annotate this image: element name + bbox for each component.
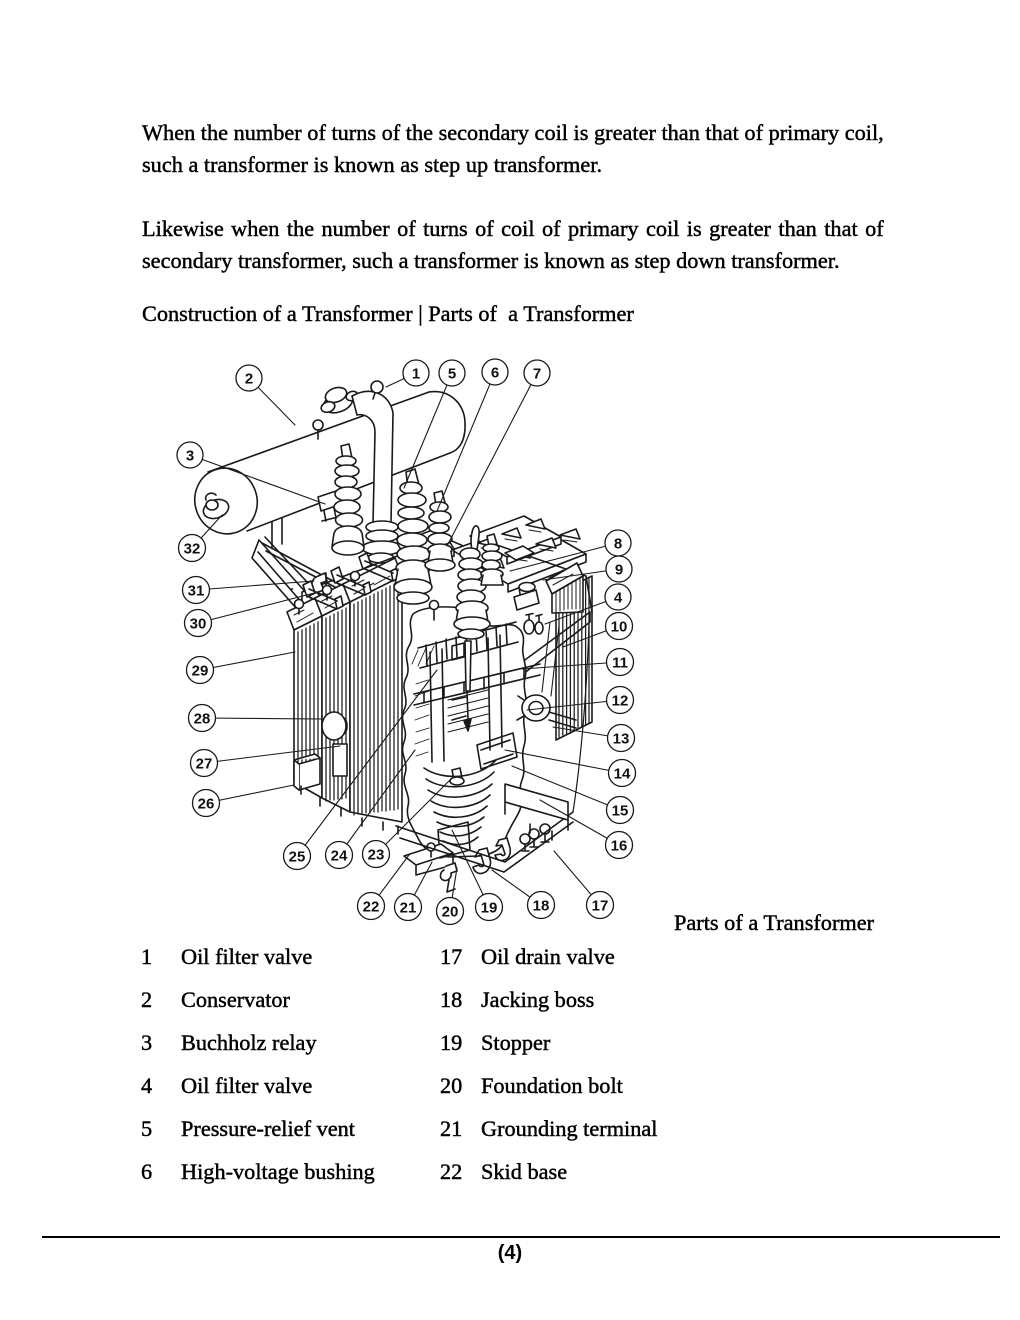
svg-text:13: 13 [613, 731, 630, 748]
svg-text:20: 20 [442, 904, 459, 921]
svg-text:32: 32 [184, 541, 201, 558]
svg-text:3: 3 [186, 448, 194, 465]
svg-text:10: 10 [611, 619, 628, 636]
svg-text:30: 30 [190, 616, 207, 633]
svg-text:29: 29 [192, 663, 209, 680]
svg-text:31: 31 [188, 583, 205, 600]
svg-text:28: 28 [194, 711, 211, 728]
svg-text:9: 9 [615, 562, 623, 579]
svg-text:14: 14 [614, 766, 631, 783]
svg-text:1: 1 [412, 366, 420, 383]
svg-text:2: 2 [245, 371, 253, 388]
svg-text:22: 22 [363, 899, 380, 916]
svg-text:11: 11 [612, 655, 628, 672]
svg-text:5: 5 [448, 366, 456, 383]
svg-text:19: 19 [481, 900, 498, 917]
svg-text:26: 26 [198, 796, 215, 813]
svg-text:25: 25 [289, 849, 306, 866]
svg-text:8: 8 [614, 536, 622, 553]
svg-text:21: 21 [400, 900, 417, 917]
svg-text:27: 27 [196, 756, 213, 773]
svg-text:18: 18 [533, 898, 550, 915]
svg-text:23: 23 [368, 847, 385, 864]
svg-text:17: 17 [592, 898, 609, 915]
svg-text:15: 15 [612, 803, 629, 820]
svg-text:7: 7 [533, 366, 541, 383]
svg-text:12: 12 [612, 693, 629, 710]
svg-text:24: 24 [331, 848, 348, 865]
svg-text:16: 16 [611, 838, 628, 855]
svg-text:6: 6 [491, 365, 499, 382]
svg-text:4: 4 [614, 590, 623, 607]
